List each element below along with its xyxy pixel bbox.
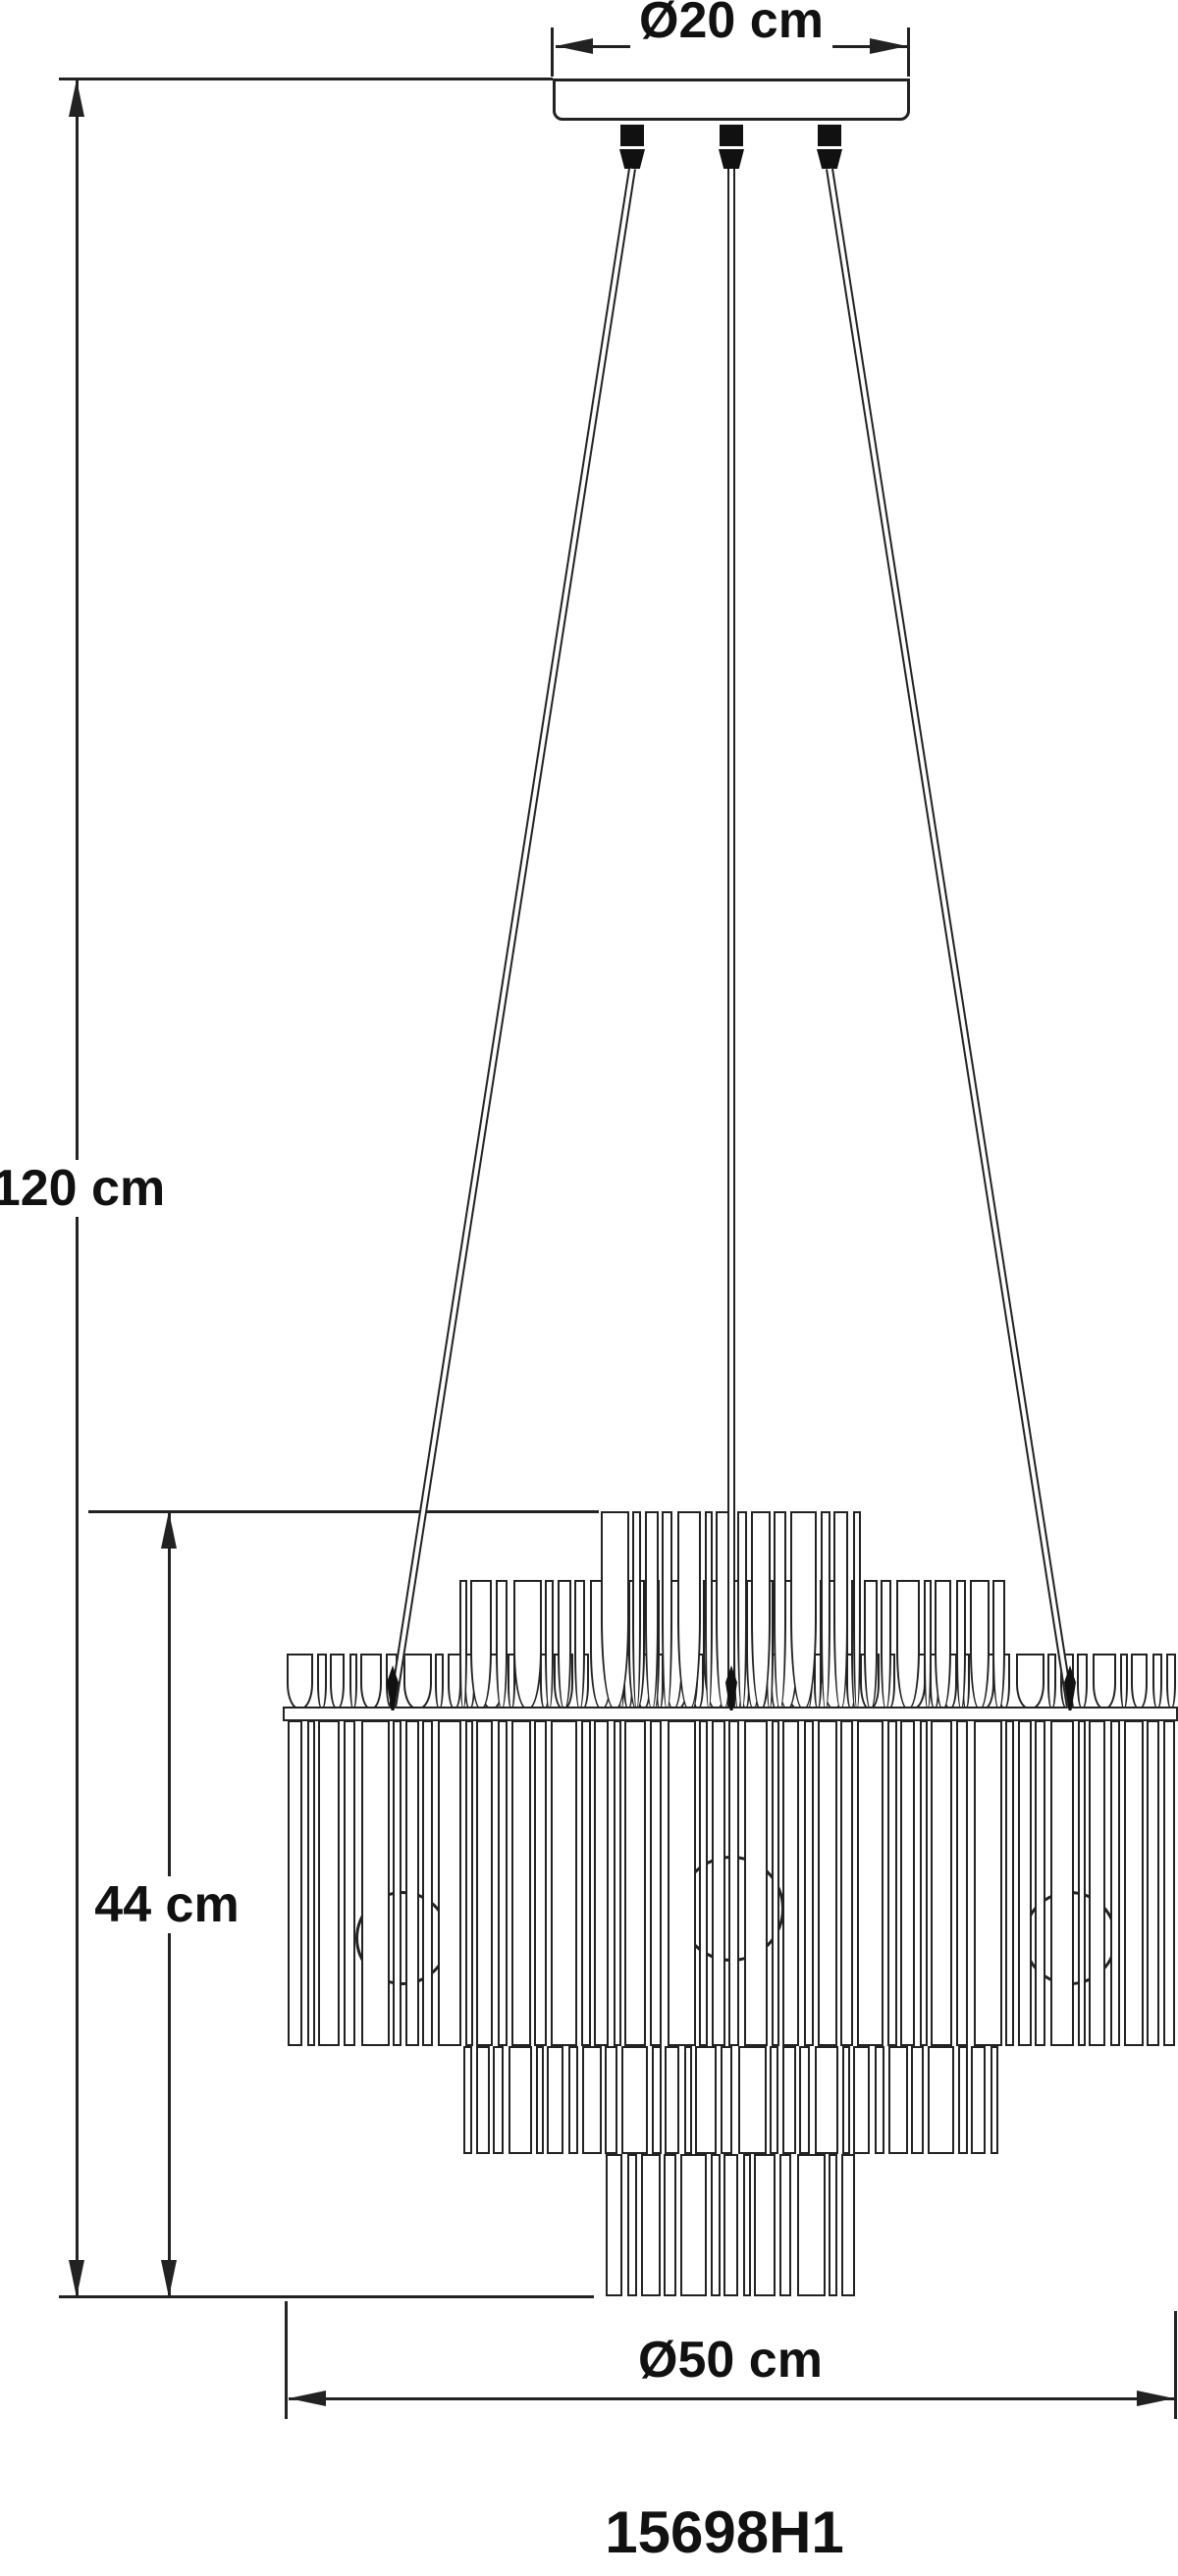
shade-slat bbox=[574, 1580, 585, 1709]
shade-slat bbox=[1047, 1654, 1056, 1709]
shade-slat bbox=[1163, 1720, 1175, 2046]
shade-slat bbox=[1018, 1720, 1032, 2046]
shade-slat bbox=[853, 2046, 870, 2154]
shade-slat bbox=[534, 1720, 547, 2046]
suspension-cord bbox=[826, 168, 1074, 1708]
shade-slat bbox=[841, 2154, 855, 2296]
cord-grip-upper bbox=[620, 125, 644, 146]
shade-slat bbox=[815, 2046, 838, 2154]
dimension-line bbox=[289, 2397, 1174, 2400]
shade-slat bbox=[680, 2154, 707, 2296]
shade-slat bbox=[1077, 1654, 1088, 1709]
shade-slat bbox=[723, 2154, 738, 2296]
shade-slat bbox=[721, 2046, 732, 2154]
shade-slat bbox=[804, 1720, 814, 2046]
shade-slat bbox=[1050, 1720, 1074, 2046]
shade-diameter-label: Ø50 cm bbox=[629, 2332, 831, 2389]
shade-slat bbox=[470, 1580, 492, 1709]
shade-slat bbox=[476, 1720, 493, 2046]
shade-slat bbox=[568, 2046, 578, 2154]
shade-slat bbox=[360, 1654, 382, 1709]
shade-slat bbox=[330, 1654, 345, 1709]
extension-line bbox=[1174, 2311, 1177, 2419]
shade-slat bbox=[974, 1720, 1002, 2046]
shade-slat bbox=[558, 1580, 571, 1709]
shade-slat bbox=[799, 2046, 810, 2154]
shade-slat bbox=[614, 1720, 621, 2046]
shade-slat bbox=[695, 2046, 717, 2154]
dimension-arrow-right bbox=[870, 38, 907, 54]
shade-slat bbox=[705, 1511, 713, 1709]
shade-slat bbox=[641, 2154, 661, 2296]
shade-slat bbox=[662, 1511, 672, 1709]
cord-grip-upper bbox=[720, 125, 743, 146]
shade-slat bbox=[711, 2154, 721, 2296]
shade-slat bbox=[738, 2046, 767, 2154]
shade-slat bbox=[896, 1580, 920, 1709]
shade-slat bbox=[958, 2046, 968, 2154]
shade-slat bbox=[645, 1511, 659, 1709]
shade-slat bbox=[818, 1720, 837, 2046]
shade-slat bbox=[875, 2046, 884, 2154]
shade-slat bbox=[782, 1720, 799, 2046]
dimension-arrow-down bbox=[161, 2260, 177, 2297]
shade-slat bbox=[344, 1720, 355, 2046]
cord-grip-lower bbox=[719, 149, 744, 169]
shade-slat bbox=[992, 1580, 1005, 1709]
shade-slat bbox=[476, 2046, 490, 2154]
shade-slat bbox=[772, 1720, 779, 2046]
shade-slat bbox=[1152, 1654, 1162, 1709]
shade-slat bbox=[677, 1511, 701, 1709]
shade-slat bbox=[797, 2154, 826, 2296]
shade-slat bbox=[935, 1580, 951, 1709]
shade-slat bbox=[770, 2046, 778, 2154]
shade-slat bbox=[422, 1720, 433, 2046]
shade-slat bbox=[840, 1720, 853, 2046]
shade-slat bbox=[1131, 1654, 1148, 1709]
shade-slat bbox=[1089, 1720, 1105, 2046]
shade-slat bbox=[1016, 1654, 1044, 1709]
shade-slat bbox=[911, 2046, 924, 2154]
shade-slat bbox=[463, 2046, 472, 2154]
shade-slat bbox=[601, 1511, 629, 1709]
shade-slat bbox=[881, 1580, 891, 1709]
canopy-diameter-label: Ø20 cm bbox=[630, 0, 832, 49]
shade-slat bbox=[1124, 1720, 1144, 2046]
shade-slat bbox=[624, 1720, 646, 2046]
cord-grip-lower bbox=[619, 149, 645, 169]
shade-slat bbox=[754, 2154, 776, 2296]
shade-slat bbox=[435, 1654, 444, 1709]
shade-slat bbox=[317, 1654, 327, 1709]
shade-slat bbox=[582, 2046, 602, 2154]
shade-slat bbox=[496, 1580, 508, 1709]
shade-slat bbox=[821, 1511, 830, 1709]
shade-slat bbox=[712, 1720, 725, 2046]
shade-slat bbox=[1120, 1654, 1128, 1709]
shade-slat bbox=[621, 2046, 648, 2154]
shade-slat bbox=[728, 1720, 739, 2046]
shade-slat bbox=[1093, 1654, 1116, 1709]
shade-slat bbox=[438, 1720, 461, 2046]
ceiling-canopy bbox=[553, 79, 910, 121]
suspension-cord bbox=[389, 168, 636, 1708]
shade-slat bbox=[920, 1720, 928, 2046]
shade-slat bbox=[545, 1580, 554, 1709]
overall-height-label: 120 cm bbox=[0, 1160, 174, 1217]
shade-slat bbox=[956, 1720, 968, 2046]
shade-slat bbox=[842, 2046, 850, 2154]
cord-grip-upper bbox=[818, 125, 841, 146]
shade-slat bbox=[509, 2046, 532, 2154]
shade-slat bbox=[900, 1720, 915, 2046]
shade-slat bbox=[699, 1720, 708, 2046]
shade-slat bbox=[511, 1720, 531, 2046]
shade-slat bbox=[864, 1580, 878, 1709]
shade-height-label: 44 cm bbox=[85, 1876, 247, 1933]
dimension-arrow-left bbox=[289, 2391, 326, 2406]
shade-slat bbox=[1078, 1720, 1086, 2046]
shade-slat bbox=[751, 1511, 771, 1709]
shade-slat bbox=[928, 2046, 954, 2154]
shade-slat bbox=[287, 1654, 313, 1709]
shade-slat bbox=[887, 1720, 897, 2046]
shade-slat bbox=[405, 1720, 419, 2046]
shade-slat bbox=[459, 1580, 467, 1709]
shade-slat bbox=[1110, 1720, 1120, 2046]
cord-grip-lower bbox=[817, 149, 842, 169]
shade-slat bbox=[627, 2154, 637, 2296]
shade-slat bbox=[664, 2154, 676, 2296]
shade-slat bbox=[349, 1654, 357, 1709]
extension-line bbox=[551, 27, 554, 77]
shade-slat bbox=[782, 2046, 796, 2154]
shade-slat bbox=[318, 1720, 340, 2046]
shade-slat bbox=[956, 1580, 966, 1709]
shade-slat bbox=[551, 1720, 577, 2046]
shade-slat bbox=[991, 2046, 998, 2154]
shade-slat bbox=[650, 1720, 662, 2046]
shade-slat bbox=[288, 1720, 302, 2046]
suspension-cord bbox=[727, 169, 735, 1708]
shade-slat bbox=[606, 2154, 622, 2296]
dimension-arrow-up bbox=[69, 79, 84, 117]
shade-slat bbox=[857, 1720, 883, 2046]
shade-slat bbox=[1166, 1654, 1176, 1709]
shade-slat bbox=[361, 1720, 390, 2046]
dimension-arrow-up bbox=[161, 1511, 177, 1549]
shade-slat bbox=[594, 1720, 609, 2046]
shade-slat bbox=[744, 1720, 768, 2046]
shade-slat bbox=[668, 1720, 696, 2046]
shade-slat bbox=[684, 2046, 692, 2154]
shade-slat bbox=[498, 1720, 508, 2046]
shade-slat bbox=[971, 2046, 986, 2154]
dimension-arrow-right bbox=[1137, 2391, 1174, 2406]
shade-slat bbox=[493, 2046, 504, 2154]
shade-slat bbox=[829, 2154, 837, 2296]
shade-slat bbox=[833, 1511, 848, 1709]
shade-slat bbox=[665, 2046, 679, 2154]
shade-slat bbox=[924, 1580, 932, 1709]
shade-slat bbox=[652, 2046, 662, 2154]
shade-slat bbox=[393, 1720, 402, 2046]
extension-line bbox=[59, 2295, 594, 2298]
extension-line bbox=[59, 78, 553, 80]
shade-slat bbox=[790, 1511, 817, 1709]
extension-line bbox=[285, 2301, 288, 2419]
shade-slat bbox=[581, 1720, 591, 2046]
shade-slat bbox=[536, 2046, 544, 2154]
shade-slat bbox=[1005, 1720, 1014, 2046]
shade-slat bbox=[403, 1654, 432, 1709]
shade-slat bbox=[853, 1511, 861, 1709]
shade-slat bbox=[465, 1720, 473, 2046]
shade-slat bbox=[605, 2046, 617, 2154]
shade-slat bbox=[931, 1720, 952, 2046]
shade-slat bbox=[513, 1580, 542, 1709]
shade-slat bbox=[743, 2154, 751, 2296]
dimension-arrow-down bbox=[69, 2260, 84, 2297]
dimension-arrow-left bbox=[556, 38, 593, 54]
extension-line bbox=[907, 27, 910, 77]
shade-slat bbox=[779, 2154, 791, 2296]
shade-slat bbox=[1035, 1720, 1045, 2046]
shade-slat bbox=[307, 1720, 315, 2046]
shade-slat bbox=[1147, 1720, 1159, 2046]
shade-slat bbox=[970, 1580, 990, 1709]
model-number-label: 15698H1 bbox=[605, 2500, 844, 2565]
shade-slat bbox=[774, 1511, 786, 1709]
shade-slat bbox=[632, 1511, 641, 1709]
pendant-lamp-dimension-drawing: Ø20 cm 120 cm 44 cm Ø50 cm 15698H1 bbox=[0, 0, 1178, 2576]
shade-slat bbox=[737, 1511, 747, 1709]
shade-slat bbox=[888, 2046, 908, 2154]
shade-slat bbox=[547, 2046, 563, 2154]
